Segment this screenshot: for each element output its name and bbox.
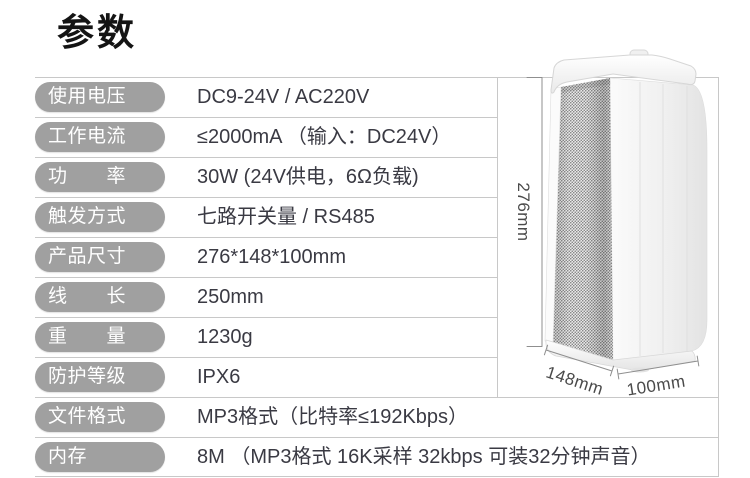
spec-row: 文件格式 MP3格式（比特率≤192Kbps） bbox=[0, 397, 750, 437]
spec-label: 产品尺寸 bbox=[48, 246, 126, 267]
width-dimension-label: 100mm bbox=[625, 372, 686, 400]
spec-value: 30W (24V供电，6Ω负载) bbox=[197, 157, 419, 197]
spec-value: 1230g bbox=[197, 317, 253, 357]
spec-row: 内存 8M （MP3格式 16K采样 32kbps 可装32分钟声音） bbox=[0, 437, 750, 477]
spec-value: 七路开关量 / RS485 bbox=[197, 197, 375, 237]
height-dimension-label: 276mm bbox=[514, 182, 533, 241]
spec-label: 工作电流 bbox=[48, 126, 126, 147]
spec-value: ≤2000mA （输入：DC24V） bbox=[197, 117, 451, 157]
spec-value: 8M （MP3格式 16K采样 32kbps 可装32分钟声音） bbox=[197, 437, 650, 477]
spec-label-pill: 产品尺寸 bbox=[35, 242, 165, 272]
spec-label: 线 长 bbox=[48, 286, 126, 307]
spec-label-pill: 线 长 bbox=[35, 282, 165, 312]
spec-label-pill: 重 量 bbox=[35, 322, 165, 352]
depth-dimension-label: 148mm bbox=[544, 363, 606, 399]
spec-label: 功 率 bbox=[48, 166, 126, 187]
spec-sheet: 参数 使用电压 DC9-24V / AC220V 工作电流 ≤2000mA （输… bbox=[0, 0, 750, 478]
spec-value: MP3格式（比特率≤192Kbps） bbox=[197, 397, 468, 437]
spec-value: 276*148*100mm bbox=[197, 237, 346, 277]
spec-value: 250mm bbox=[197, 277, 264, 317]
spec-label-pill: 功 率 bbox=[35, 162, 165, 192]
spec-label: 触发方式 bbox=[48, 206, 126, 227]
spec-label: 内存 bbox=[48, 446, 87, 467]
spec-label: 使用电压 bbox=[48, 86, 126, 107]
spec-value: DC9-24V / AC220V bbox=[197, 77, 369, 117]
speaker-mesh-shading bbox=[553, 78, 613, 360]
page-title: 参数 bbox=[57, 14, 137, 51]
spec-label-pill: 内存 bbox=[35, 442, 165, 472]
spec-label-pill: 工作电流 bbox=[35, 122, 165, 152]
spec-label: 重 量 bbox=[48, 326, 126, 347]
spec-label-pill: 文件格式 bbox=[35, 402, 165, 432]
spec-label-pill: 触发方式 bbox=[35, 202, 165, 232]
spec-label-pill: 防护等级 bbox=[35, 362, 165, 392]
spec-label-pill: 使用电压 bbox=[35, 82, 165, 112]
spec-label: 防护等级 bbox=[48, 366, 126, 387]
speaker-product-image: 276mm 148mm 100mm bbox=[497, 45, 719, 397]
speaker bbox=[545, 50, 707, 373]
spec-label: 文件格式 bbox=[48, 406, 126, 427]
speaker-side-panel bbox=[610, 78, 707, 361]
spec-value: IPX6 bbox=[197, 357, 240, 397]
